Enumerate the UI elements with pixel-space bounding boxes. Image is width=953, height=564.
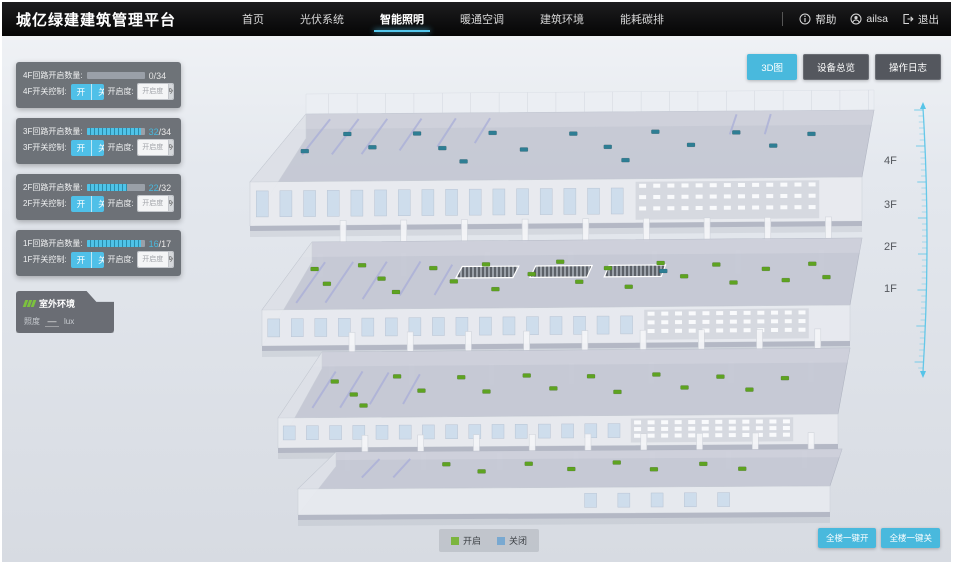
legend-swatch-off — [497, 537, 505, 545]
illuminance-label: 照度 — [24, 316, 40, 327]
switch-off-button-2f[interactable]: 关 — [91, 196, 103, 212]
circuit-count-bar-fill — [87, 240, 142, 247]
switch-buttons: 开关 — [71, 84, 104, 100]
nav-item-pv-system[interactable]: 光伏系统 — [292, 2, 352, 36]
platform-title: 城亿绿建建筑管理平台 — [2, 9, 176, 30]
legend-swatch-on — [451, 537, 459, 545]
switch-control-row: 1F开关控制:开关开启度:% — [23, 251, 174, 268]
main-nav: 首页光伏系统智能照明暖通空调建筑环境能耗碳排 — [224, 2, 682, 36]
dim-input-4f[interactable] — [138, 84, 168, 99]
circuit-count-bar-fill — [87, 128, 142, 135]
floor-scale-label-1f[interactable]: 1F — [884, 283, 897, 295]
user-menu[interactable]: ailsa — [850, 13, 888, 25]
switch-off-button-4f[interactable]: 关 — [91, 84, 103, 100]
dim-label: 开启度: — [108, 142, 134, 153]
circuit-count-row: 3F回路开启数量:32/34 — [23, 126, 174, 137]
switch-control-row: 4F开关控制:开关开启度:% — [23, 83, 174, 100]
circuit-count-bar — [87, 184, 145, 191]
dim-input-group: % — [137, 251, 174, 268]
switch-buttons: 开关 — [71, 196, 104, 212]
dim-percent-button-2f[interactable]: % — [168, 196, 174, 211]
floor-scale-label-2f[interactable]: 2F — [884, 241, 897, 253]
illuminance-unit: lux — [64, 317, 74, 326]
help-label: 帮助 — [815, 12, 836, 27]
circuit-count-row: 1F回路开启数量:16/17 — [23, 238, 174, 249]
switch-on-button-3f[interactable]: 开 — [71, 140, 92, 156]
floor-control-panels: 4F回路开启数量:0/344F开关控制:开关开启度:%3F回路开启数量:32/3… — [16, 62, 181, 276]
switch-on-button-2f[interactable]: 开 — [71, 196, 92, 212]
switch-control-row: 2F开关控制:开关开启度:% — [23, 195, 174, 212]
circuit-count-bar — [87, 72, 145, 79]
dim-percent-button-1f[interactable]: % — [168, 252, 174, 267]
logout-button[interactable]: 退出 — [902, 12, 939, 27]
switch-buttons: 开关 — [71, 140, 104, 156]
dim-label: 开启度: — [108, 198, 134, 209]
floor-panel-4f: 4F回路开启数量:0/344F开关控制:开关开启度:% — [16, 62, 181, 108]
building-floor-4f — [250, 90, 874, 237]
legend-label-off: 关闭 — [509, 534, 527, 547]
help-button[interactable]: 帮助 — [799, 12, 836, 27]
dim-label: 开启度: — [108, 254, 134, 265]
bulk-action-buttons: 全楼一键开全楼一键关 — [818, 528, 940, 548]
all-on-button[interactable]: 全楼一键开 — [818, 528, 877, 548]
circuit-count-bar — [87, 128, 145, 135]
dim-percent-button-4f[interactable]: % — [168, 84, 174, 99]
circuit-count-bar-fill — [87, 184, 127, 191]
switch-control-label: 2F开关控制: — [23, 198, 67, 209]
floor-panel-1f: 1F回路开启数量:16/171F开关控制:开关开启度:% — [16, 230, 181, 276]
outdoor-title: 室外环境 — [39, 297, 75, 310]
dim-input-group: % — [137, 195, 174, 212]
user-name: ailsa — [866, 13, 888, 25]
illuminance-value: — — [45, 316, 59, 327]
dim-input-2f[interactable] — [138, 196, 168, 211]
circuit-count-value: 16/17 — [149, 239, 172, 249]
switch-buttons: 开关 — [71, 252, 104, 268]
dim-input-3f[interactable] — [138, 140, 168, 155]
view-3d-button[interactable]: 3D图 — [747, 54, 797, 80]
all-off-button[interactable]: 全楼一键关 — [881, 528, 940, 548]
dim-percent-button-3f[interactable]: % — [168, 140, 174, 155]
nav-item-hvac[interactable]: 暖通空调 — [452, 2, 512, 36]
circuit-count-label: 4F回路开启数量: — [23, 70, 83, 81]
circuit-count-value: 32/34 — [149, 127, 172, 137]
switch-control-label: 1F开关控制: — [23, 254, 67, 265]
legend-item-off: 关闭 — [497, 534, 527, 547]
dim-input-group: % — [137, 139, 174, 156]
illuminance-row: 照度 — lux — [24, 316, 106, 327]
logout-icon — [902, 13, 914, 25]
zoom-ruler[interactable] — [910, 102, 940, 378]
user-icon — [850, 13, 862, 25]
nav-item-home[interactable]: 首页 — [234, 2, 272, 36]
info-icon — [799, 13, 811, 25]
circuit-count-label: 3F回路开启数量: — [23, 126, 83, 137]
switch-on-button-1f[interactable]: 开 — [71, 252, 92, 268]
nav-item-energy-carbon[interactable]: 能耗碳排 — [612, 2, 672, 36]
legend-label-on: 开启 — [463, 534, 481, 547]
circuit-count-label: 2F回路开启数量: — [23, 182, 83, 193]
dim-label: 开启度: — [108, 86, 134, 97]
switch-on-button-4f[interactable]: 开 — [71, 84, 92, 100]
legend-item-on: 开启 — [451, 534, 481, 547]
circuit-count-bar — [87, 240, 145, 247]
divider — [782, 12, 783, 26]
dim-input-group: % — [137, 83, 174, 100]
top-navigation-bar: 城亿绿建建筑管理平台 首页光伏系统智能照明暖通空调建筑环境能耗碳排 帮助 ail… — [2, 2, 951, 36]
switch-off-button-1f[interactable]: 关 — [91, 252, 103, 268]
nav-item-smart-lighting[interactable]: 智能照明 — [372, 2, 432, 36]
dim-input-1f[interactable] — [138, 252, 168, 267]
app-window: 城亿绿建建筑管理平台 首页光伏系统智能照明暖通空调建筑环境能耗碳排 帮助 ail… — [0, 0, 953, 564]
nav-item-building-env[interactable]: 建筑环境 — [532, 2, 592, 36]
status-legend: 开启关闭 — [439, 529, 539, 552]
circuit-count-row: 2F回路开启数量:22/32 — [23, 182, 174, 193]
switch-control-label: 3F开关控制: — [23, 142, 67, 153]
floor-panel-2f: 2F回路开启数量:22/322F开关控制:开关开启度:% — [16, 174, 181, 220]
floor-panel-3f: 3F回路开启数量:32/343F开关控制:开关开启度:% — [16, 118, 181, 164]
logout-label: 退出 — [918, 12, 939, 27]
floor-scale-label-3f[interactable]: 3F — [884, 199, 897, 211]
circuit-count-label: 1F回路开启数量: — [23, 238, 83, 249]
switch-control-row: 3F开关控制:开关开启度:% — [23, 139, 174, 156]
switch-control-label: 4F开关控制: — [23, 86, 67, 97]
device-overview-button[interactable]: 设备总览 — [803, 54, 869, 80]
circuit-count-row: 4F回路开启数量:0/34 — [23, 70, 174, 81]
env-leaf-icon — [24, 300, 35, 307]
floor-scale-label-4f[interactable]: 4F — [884, 155, 897, 167]
view-mode-buttons: 3D图设备总览操作日志 — [747, 54, 941, 80]
circuit-count-value: 22/32 — [149, 183, 172, 193]
operation-log-button[interactable]: 操作日志 — [875, 54, 941, 80]
switch-off-button-3f[interactable]: 关 — [91, 140, 103, 156]
user-area: 帮助 ailsa 退出 — [782, 12, 951, 27]
circuit-count-value: 0/34 — [149, 71, 167, 81]
